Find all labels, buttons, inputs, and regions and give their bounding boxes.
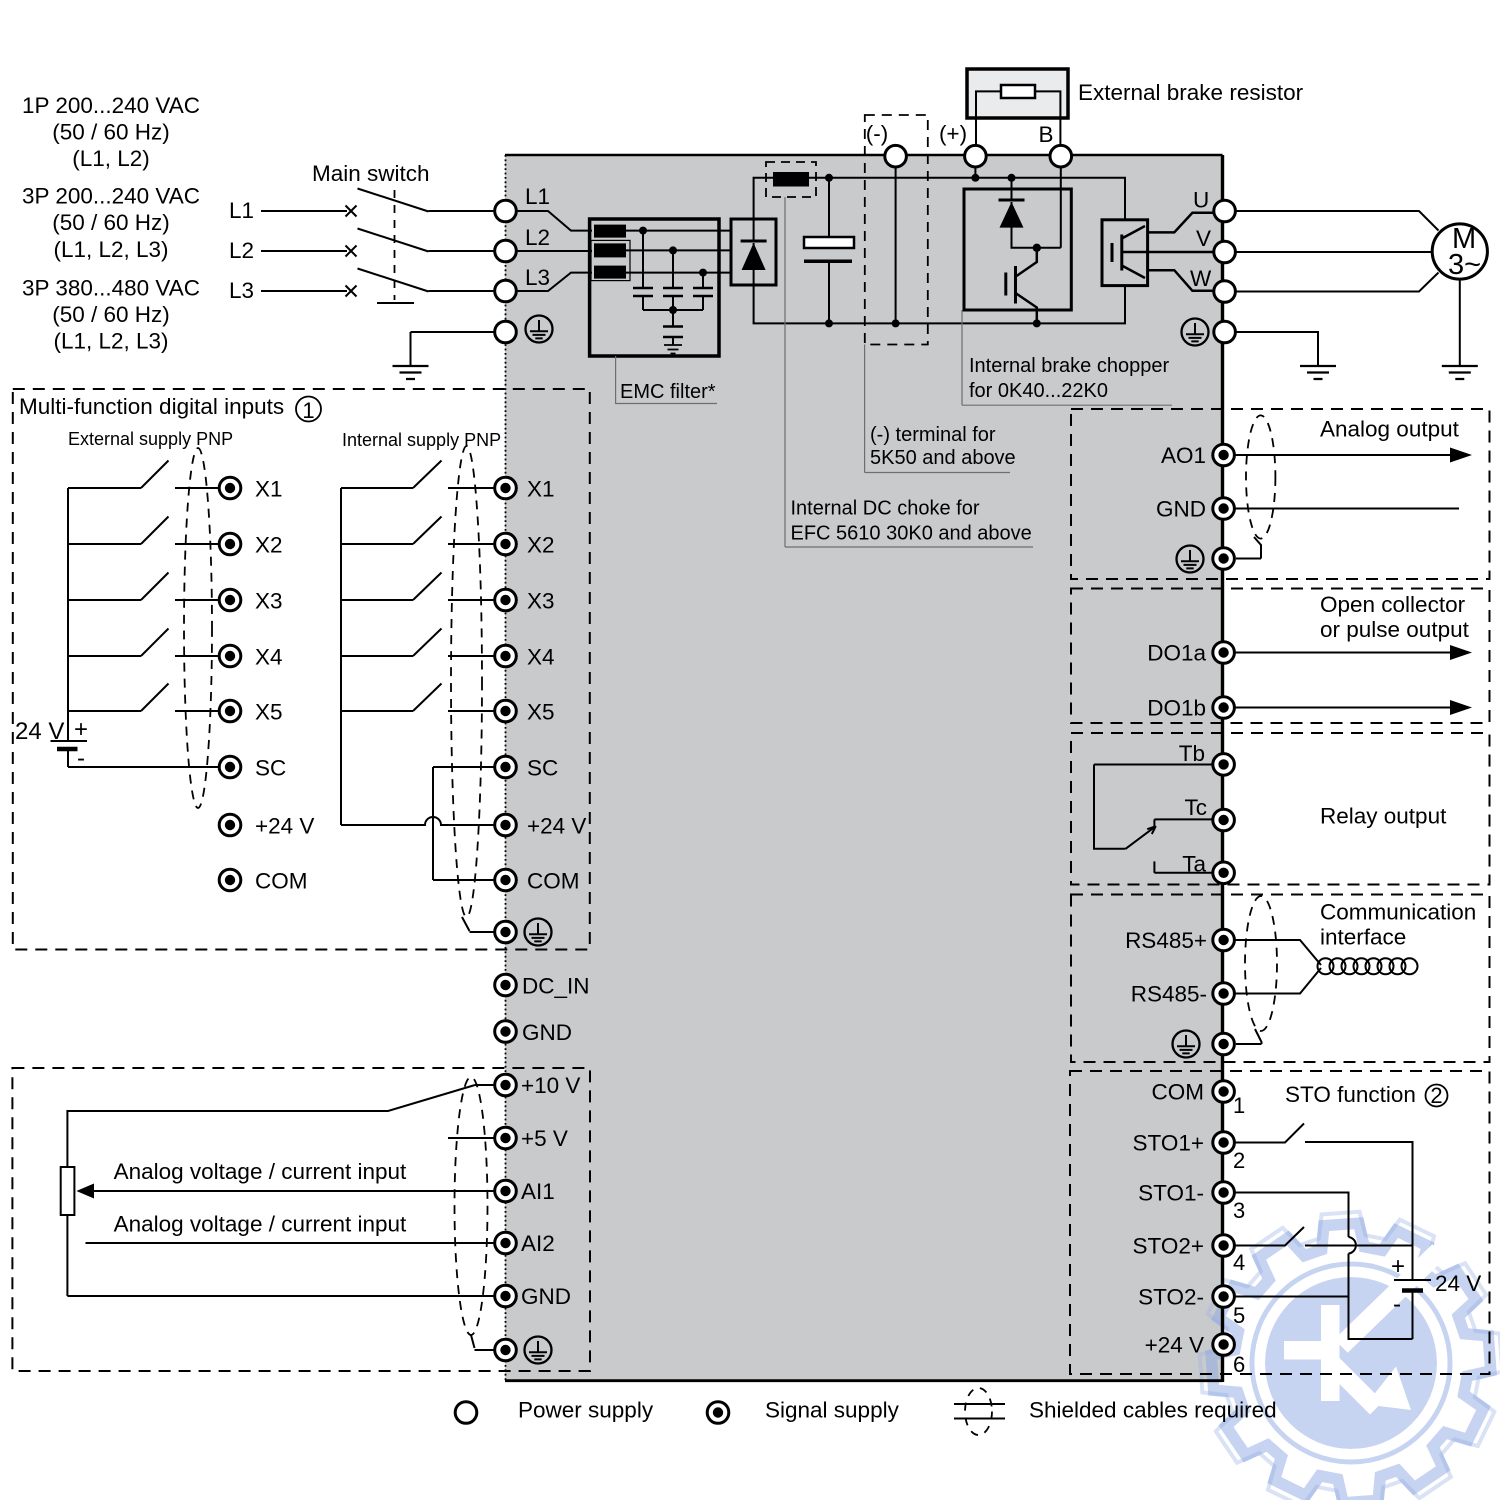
- svg-text:Tc: Tc: [1185, 795, 1208, 820]
- svg-text:X3: X3: [527, 589, 555, 614]
- svg-text:DO1a: DO1a: [1147, 641, 1206, 666]
- svg-text:L2: L2: [229, 238, 254, 263]
- svg-text:3P 200...240 VAC: 3P 200...240 VAC: [22, 184, 200, 209]
- svg-text:RS485-: RS485-: [1131, 982, 1207, 1007]
- svg-text:COM: COM: [527, 869, 580, 894]
- svg-text:STO1+: STO1+: [1133, 1131, 1205, 1156]
- svg-text:STO function: STO function: [1285, 1082, 1416, 1107]
- svg-text:3P 380...480 VAC: 3P 380...480 VAC: [22, 276, 200, 301]
- svg-text:GND: GND: [522, 1020, 572, 1045]
- svg-text:+10 V: +10 V: [521, 1073, 580, 1098]
- svg-text:(+): (+): [939, 121, 967, 146]
- svg-text:X4: X4: [255, 645, 283, 670]
- svg-text:STO2-: STO2-: [1138, 1285, 1204, 1310]
- svg-text:interface: interface: [1320, 925, 1406, 950]
- svg-text:Relay output: Relay output: [1320, 804, 1447, 829]
- svg-text:24 V: 24 V: [1435, 1271, 1481, 1296]
- svg-text:V: V: [1196, 226, 1211, 251]
- svg-text:STO1-: STO1-: [1138, 1181, 1204, 1206]
- svg-text:GND: GND: [521, 1284, 571, 1309]
- svg-text:24 V: 24 V: [15, 718, 64, 745]
- svg-text:Main switch: Main switch: [312, 161, 430, 186]
- svg-text:U: U: [1193, 188, 1209, 213]
- svg-text:EFC 5610 30K0 and above: EFC 5610 30K0 and above: [791, 523, 1032, 545]
- svg-text:Power supply: Power supply: [518, 1398, 654, 1423]
- svg-text:2: 2: [1430, 1083, 1442, 1108]
- svg-text:COM: COM: [255, 869, 308, 894]
- svg-text:-: -: [77, 745, 85, 772]
- svg-text:Analog voltage / current input: Analog voltage / current input: [114, 1159, 407, 1184]
- svg-text:2: 2: [1233, 1148, 1245, 1173]
- svg-text:COM: COM: [1152, 1080, 1205, 1105]
- svg-text:3~: 3~: [1448, 249, 1481, 281]
- svg-text:Internal supply PNP: Internal supply PNP: [342, 430, 501, 450]
- svg-text:(50 / 60 Hz): (50 / 60 Hz): [52, 120, 170, 145]
- svg-text:or pulse output: or pulse output: [1320, 617, 1470, 642]
- svg-text:+24 V: +24 V: [1145, 1333, 1204, 1358]
- svg-text:3: 3: [1233, 1198, 1245, 1223]
- svg-text:1: 1: [1233, 1093, 1245, 1118]
- svg-text:L1: L1: [525, 184, 550, 209]
- svg-text:1: 1: [302, 398, 314, 423]
- svg-text:+: +: [1391, 1253, 1405, 1280]
- svg-text:(50 / 60 Hz): (50 / 60 Hz): [52, 302, 170, 327]
- svg-text:X5: X5: [527, 700, 555, 725]
- svg-text:RS485+: RS485+: [1125, 928, 1207, 953]
- svg-text:+: +: [74, 716, 88, 743]
- svg-text:X1: X1: [255, 477, 283, 502]
- svg-text:Tb: Tb: [1179, 741, 1205, 766]
- svg-text:Internal brake chopper: Internal brake chopper: [969, 355, 1169, 377]
- svg-text:Analog output: Analog output: [1320, 417, 1460, 442]
- svg-text:Ta: Ta: [1182, 852, 1206, 877]
- svg-text:6: 6: [1233, 1352, 1245, 1377]
- svg-text:5K50 and above: 5K50 and above: [870, 447, 1016, 469]
- svg-text:(L1, L2, L3): (L1, L2, L3): [53, 237, 168, 262]
- svg-text:B: B: [1038, 122, 1053, 147]
- svg-text:STO2+: STO2+: [1133, 1234, 1205, 1259]
- svg-text:(-) terminal for: (-) terminal for: [870, 424, 996, 446]
- svg-text:X2: X2: [527, 533, 555, 558]
- svg-text:+24 V: +24 V: [527, 814, 586, 839]
- svg-text:External supply PNP: External supply PNP: [68, 429, 233, 449]
- svg-text:(L1, L2, L3): (L1, L2, L3): [53, 329, 168, 354]
- svg-text:GND: GND: [1156, 497, 1206, 522]
- svg-text:W: W: [1190, 266, 1212, 291]
- svg-text:AO1: AO1: [1161, 443, 1206, 468]
- svg-text:+5 V: +5 V: [521, 1126, 568, 1151]
- svg-text:-: -: [1393, 1291, 1401, 1318]
- svg-text:External brake resistor: External brake resistor: [1078, 80, 1304, 105]
- svg-text:for 0K40...22K0: for 0K40...22K0: [969, 380, 1108, 402]
- svg-text:L2: L2: [525, 225, 550, 250]
- svg-text:1P 200...240 VAC: 1P 200...240 VAC: [22, 93, 200, 118]
- svg-text:5: 5: [1233, 1303, 1245, 1328]
- svg-text:AI1: AI1: [521, 1179, 555, 1204]
- svg-text:(L1, L2): (L1, L2): [72, 146, 150, 171]
- svg-text:Shielded cables required: Shielded cables required: [1029, 1398, 1277, 1423]
- svg-text:L3: L3: [229, 278, 254, 303]
- svg-text:4: 4: [1233, 1250, 1245, 1275]
- svg-text:DO1b: DO1b: [1147, 696, 1206, 721]
- svg-text:L3: L3: [525, 265, 550, 290]
- svg-text:Open collector: Open collector: [1320, 592, 1466, 617]
- svg-text:Signal supply: Signal supply: [765, 1398, 900, 1423]
- svg-text:X2: X2: [255, 533, 283, 558]
- svg-text:+24 V: +24 V: [255, 814, 314, 839]
- svg-text:X5: X5: [255, 700, 283, 725]
- svg-text:SC: SC: [255, 756, 286, 781]
- svg-text:X4: X4: [527, 645, 555, 670]
- svg-text:AI2: AI2: [521, 1231, 555, 1256]
- svg-text:L1: L1: [229, 198, 254, 223]
- svg-text:Multi-function digital inputs: Multi-function digital inputs: [19, 394, 284, 419]
- svg-text:X1: X1: [527, 477, 555, 502]
- svg-text:(50 / 60 Hz): (50 / 60 Hz): [52, 210, 170, 235]
- svg-text:X3: X3: [255, 589, 283, 614]
- svg-text:Analog voltage / current input: Analog voltage / current input: [114, 1212, 407, 1237]
- svg-text:EMC filter*: EMC filter*: [620, 381, 716, 403]
- svg-text:SC: SC: [527, 756, 558, 781]
- svg-text:(-): (-): [866, 121, 888, 146]
- svg-text:Internal DC choke for: Internal DC choke for: [791, 498, 980, 520]
- svg-text:Communication: Communication: [1320, 900, 1476, 925]
- svg-text:DC_IN: DC_IN: [522, 974, 590, 999]
